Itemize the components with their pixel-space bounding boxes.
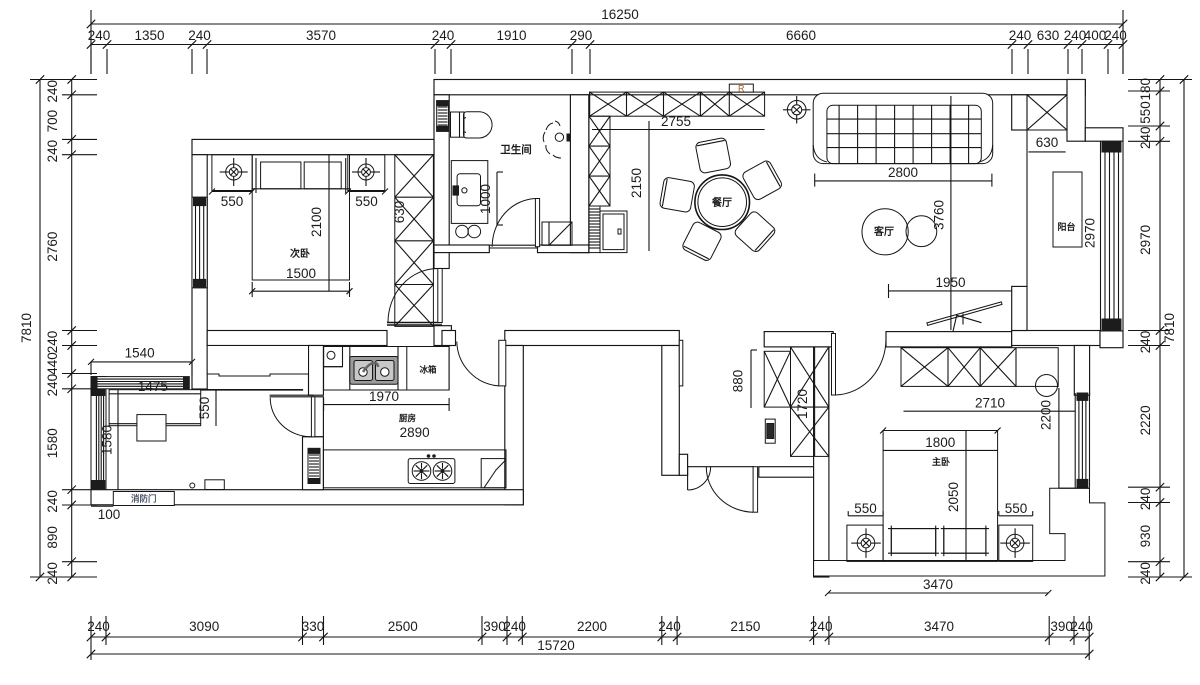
svg-text:3570: 3570 bbox=[306, 28, 336, 43]
svg-text:550: 550 bbox=[1138, 101, 1153, 124]
svg-text:1910: 1910 bbox=[496, 28, 526, 43]
svg-text:240: 240 bbox=[45, 140, 60, 163]
svg-text:2800: 2800 bbox=[888, 165, 918, 180]
svg-text:3090: 3090 bbox=[189, 619, 219, 634]
svg-text:240: 240 bbox=[1138, 331, 1153, 354]
svg-text:240: 240 bbox=[45, 331, 60, 354]
svg-text:1580: 1580 bbox=[45, 428, 60, 458]
svg-text:400: 400 bbox=[1084, 28, 1107, 43]
svg-text:2760: 2760 bbox=[45, 232, 60, 262]
svg-text:2050: 2050 bbox=[946, 482, 961, 512]
svg-text:630: 630 bbox=[1036, 135, 1059, 150]
svg-text:240: 240 bbox=[1138, 562, 1153, 585]
svg-text:餐厅: 餐厅 bbox=[711, 196, 732, 209]
svg-text:厨房: 厨房 bbox=[399, 413, 416, 423]
svg-text:1970: 1970 bbox=[369, 389, 399, 404]
svg-text:550: 550 bbox=[221, 194, 244, 209]
svg-text:330: 330 bbox=[302, 619, 325, 634]
svg-text:1350: 1350 bbox=[134, 28, 164, 43]
svg-text:630: 630 bbox=[392, 201, 407, 224]
svg-text:2970: 2970 bbox=[1083, 218, 1098, 248]
svg-text:240: 240 bbox=[1009, 28, 1032, 43]
svg-text:消防门: 消防门 bbox=[131, 494, 157, 504]
svg-text:1950: 1950 bbox=[935, 275, 965, 290]
svg-text:180: 180 bbox=[1138, 78, 1153, 101]
svg-text:2500: 2500 bbox=[388, 619, 418, 634]
svg-text:卫生间: 卫生间 bbox=[500, 143, 532, 156]
svg-text:290: 290 bbox=[570, 28, 593, 43]
svg-text:1500: 1500 bbox=[286, 266, 316, 281]
svg-text:1720: 1720 bbox=[795, 389, 810, 419]
svg-text:2755: 2755 bbox=[661, 114, 691, 129]
svg-text:16250: 16250 bbox=[601, 7, 639, 22]
svg-text:3470: 3470 bbox=[923, 577, 953, 592]
svg-text:2150: 2150 bbox=[629, 168, 644, 198]
svg-text:890: 890 bbox=[45, 526, 60, 549]
svg-text:2710: 2710 bbox=[975, 396, 1005, 411]
svg-text:1580: 1580 bbox=[100, 425, 115, 455]
svg-text:240: 240 bbox=[188, 28, 211, 43]
svg-text:7810: 7810 bbox=[1162, 313, 1177, 343]
svg-text:1475: 1475 bbox=[138, 379, 168, 394]
svg-text:次卧: 次卧 bbox=[290, 247, 310, 260]
svg-text:880: 880 bbox=[731, 370, 746, 393]
svg-text:440: 440 bbox=[45, 352, 60, 375]
svg-text:1800: 1800 bbox=[925, 435, 955, 450]
svg-text:700: 700 bbox=[45, 110, 60, 133]
svg-text:2970: 2970 bbox=[1138, 225, 1153, 255]
svg-text:240: 240 bbox=[1138, 488, 1153, 511]
svg-text:7810: 7810 bbox=[19, 313, 34, 343]
svg-text:2200: 2200 bbox=[1039, 400, 1054, 430]
svg-text:R: R bbox=[738, 84, 745, 94]
svg-text:240: 240 bbox=[45, 80, 60, 103]
svg-text:240: 240 bbox=[1138, 126, 1153, 149]
svg-text:1000: 1000 bbox=[478, 184, 493, 214]
svg-text:1540: 1540 bbox=[125, 346, 155, 361]
svg-text:240: 240 bbox=[45, 374, 60, 397]
svg-text:2150: 2150 bbox=[730, 619, 760, 634]
svg-text:客厅: 客厅 bbox=[873, 225, 894, 238]
svg-text:冰箱: 冰箱 bbox=[419, 365, 437, 375]
svg-text:2200: 2200 bbox=[577, 619, 607, 634]
svg-text:6660: 6660 bbox=[786, 28, 816, 43]
svg-text:2220: 2220 bbox=[1138, 405, 1153, 435]
svg-text:15720: 15720 bbox=[537, 638, 575, 653]
svg-text:2100: 2100 bbox=[309, 207, 324, 237]
svg-text:550: 550 bbox=[197, 397, 212, 420]
svg-text:3470: 3470 bbox=[924, 619, 954, 634]
svg-text:240: 240 bbox=[45, 562, 60, 585]
svg-text:阳台: 阳台 bbox=[1057, 221, 1075, 232]
svg-text:550: 550 bbox=[854, 501, 877, 516]
svg-text:3760: 3760 bbox=[932, 200, 947, 230]
svg-text:240: 240 bbox=[45, 490, 60, 513]
svg-text:主卧: 主卧 bbox=[932, 456, 950, 467]
svg-text:630: 630 bbox=[1037, 28, 1060, 43]
svg-text:2890: 2890 bbox=[400, 425, 430, 440]
svg-text:240: 240 bbox=[432, 28, 455, 43]
svg-text:550: 550 bbox=[1005, 501, 1028, 516]
svg-text:550: 550 bbox=[355, 194, 378, 209]
svg-text:930: 930 bbox=[1138, 525, 1153, 548]
svg-text:100: 100 bbox=[98, 507, 121, 522]
